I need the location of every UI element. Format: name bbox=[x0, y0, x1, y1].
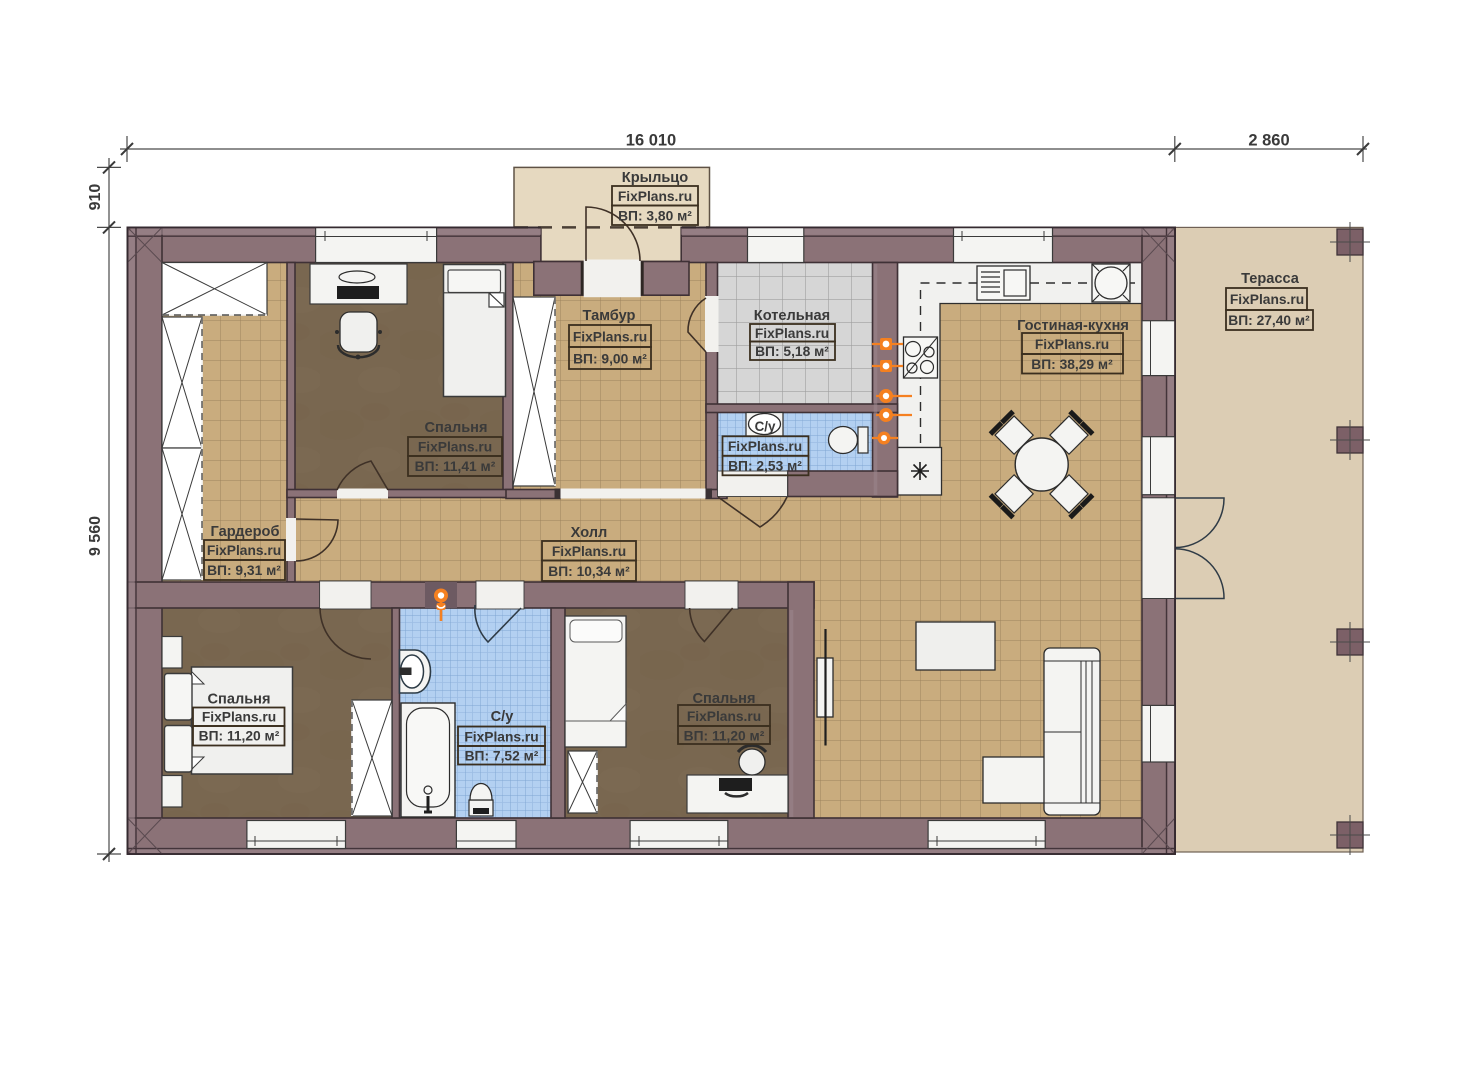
svg-text:910: 910 bbox=[87, 184, 104, 211]
svg-text:Спальня: Спальня bbox=[424, 420, 487, 436]
svg-text:FixPlans.ru: FixPlans.ru bbox=[618, 189, 692, 204]
svg-text:FixPlans.ru: FixPlans.ru bbox=[755, 326, 829, 341]
svg-text:FixPlans.ru: FixPlans.ru bbox=[207, 543, 281, 558]
svg-text:Терасса: Терасса bbox=[1241, 271, 1300, 287]
svg-text:FixPlans.ru: FixPlans.ru bbox=[552, 544, 626, 559]
svg-text:ВП: 2,53 м²: ВП: 2,53 м² bbox=[728, 459, 802, 474]
svg-text:С/у: С/у bbox=[491, 709, 515, 725]
svg-text:Крыльцо: Крыльцо bbox=[622, 170, 688, 186]
svg-text:ВП: 3,80 м²: ВП: 3,80 м² bbox=[618, 209, 692, 224]
svg-text:ВП: 27,40 м²: ВП: 27,40 м² bbox=[1228, 313, 1310, 328]
svg-text:FixPlans.ru: FixPlans.ru bbox=[464, 730, 538, 745]
svg-text:Гостиная-кухня: Гостиная-кухня bbox=[1017, 318, 1129, 334]
svg-text:FixPlans.ru: FixPlans.ru bbox=[687, 709, 761, 724]
svg-text:Тамбур: Тамбур bbox=[583, 308, 636, 324]
svg-text:ВП: 5,18 м²: ВП: 5,18 м² bbox=[755, 344, 829, 359]
svg-text:Котельная: Котельная bbox=[754, 308, 830, 324]
svg-text:FixPlans.ru: FixPlans.ru bbox=[202, 710, 276, 725]
svg-text:Гардероб: Гардероб bbox=[211, 524, 280, 540]
svg-text:9 560: 9 560 bbox=[87, 516, 104, 556]
svg-text:16 010: 16 010 bbox=[626, 132, 676, 150]
svg-text:Спальня: Спальня bbox=[207, 692, 270, 708]
svg-text:FixPlans.ru: FixPlans.ru bbox=[1230, 292, 1304, 307]
svg-text:ВП: 11,41 м²: ВП: 11,41 м² bbox=[415, 459, 496, 474]
svg-text:FixPlans.ru: FixPlans.ru bbox=[728, 439, 802, 454]
svg-text:ВП: 9,31 м²: ВП: 9,31 м² bbox=[207, 563, 281, 578]
svg-text:ВП: 9,00 м²: ВП: 9,00 м² bbox=[573, 352, 647, 367]
svg-text:FixPlans.ru: FixPlans.ru bbox=[418, 440, 492, 455]
svg-text:ВП: 38,29 м²: ВП: 38,29 м² bbox=[1031, 357, 1113, 372]
svg-text:Холл: Холл bbox=[571, 525, 608, 541]
svg-text:ВП: 10,34 м²: ВП: 10,34 м² bbox=[548, 564, 630, 579]
svg-text:FixPlans.ru: FixPlans.ru bbox=[573, 330, 647, 345]
svg-text:FixPlans.ru: FixPlans.ru bbox=[1035, 337, 1109, 352]
svg-text:ВП: 11,20 м²: ВП: 11,20 м² bbox=[684, 729, 765, 744]
svg-text:2 860: 2 860 bbox=[1248, 132, 1289, 150]
svg-text:С/у: С/у bbox=[755, 419, 776, 434]
svg-text:ВП: 11,20 м²: ВП: 11,20 м² bbox=[199, 729, 280, 744]
svg-text:ВП: 7,52 м²: ВП: 7,52 м² bbox=[465, 749, 539, 764]
